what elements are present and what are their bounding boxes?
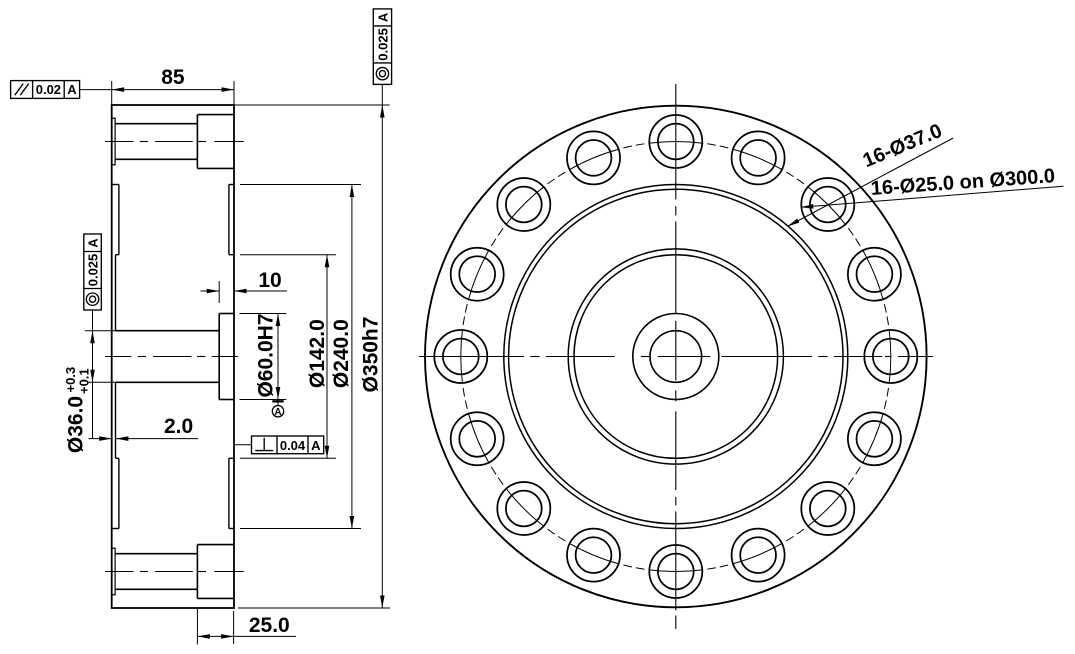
svg-text:2.0: 2.0: [164, 415, 193, 438]
svg-text:10: 10: [258, 269, 281, 292]
svg-text:0.04: 0.04: [280, 438, 306, 453]
svg-text:A: A: [85, 238, 100, 248]
svg-text:Ø60.0H7: Ø60.0H7: [255, 313, 278, 397]
svg-text:A: A: [375, 12, 390, 22]
svg-text:Ø240.0: Ø240.0: [330, 319, 353, 388]
svg-text:Ø36.0: Ø36.0: [65, 396, 88, 453]
svg-text:0.025: 0.025: [85, 254, 100, 287]
svg-text:Ø142.0: Ø142.0: [306, 319, 329, 388]
svg-text:25.0: 25.0: [249, 614, 290, 637]
svg-text:85: 85: [161, 66, 185, 89]
svg-text:0.02: 0.02: [36, 82, 61, 97]
svg-text:Ø350h7: Ø350h7: [360, 317, 383, 393]
svg-text:A: A: [67, 82, 77, 97]
svg-text:+0.1: +0.1: [76, 368, 91, 394]
svg-text:A: A: [311, 438, 321, 453]
svg-text:0.025: 0.025: [375, 28, 390, 61]
svg-text:A: A: [274, 407, 281, 418]
